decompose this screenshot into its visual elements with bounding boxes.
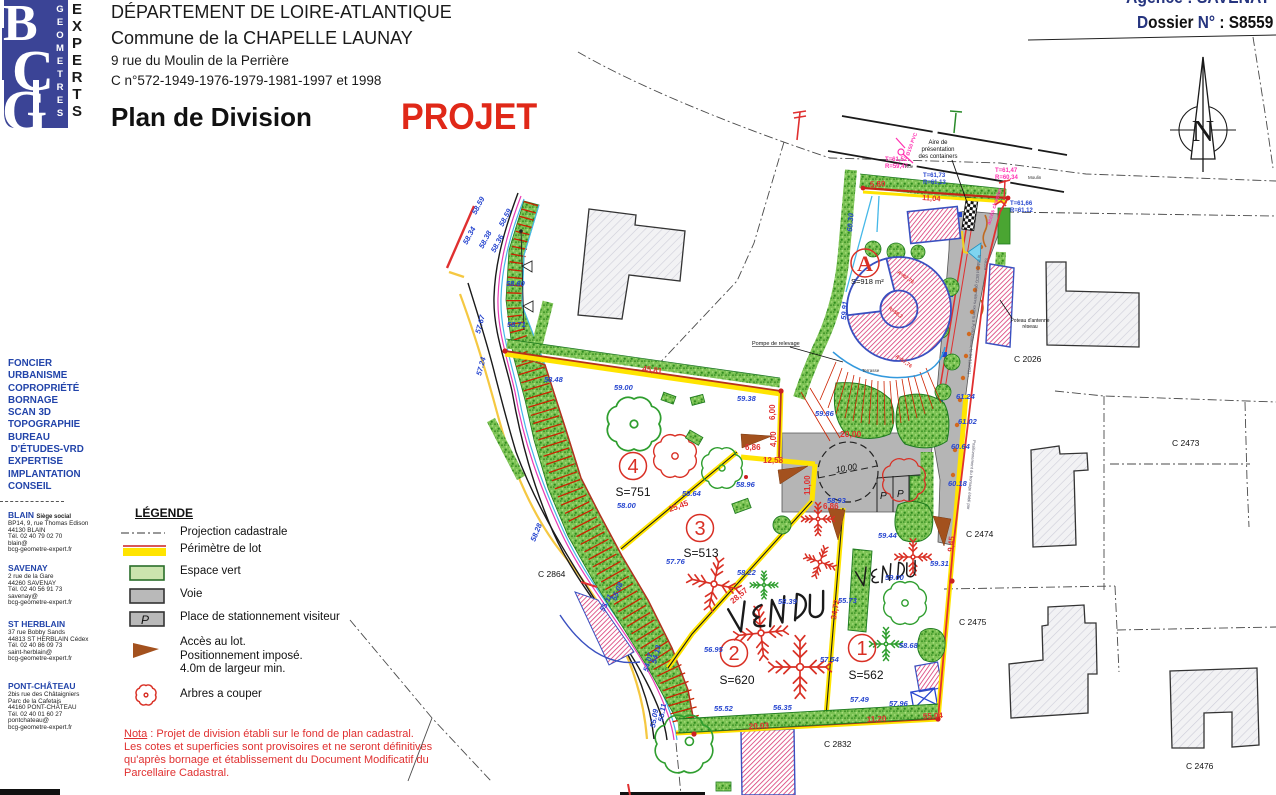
svg-text:58.39: 58.39 [778, 597, 798, 606]
svg-text:1: 1 [856, 638, 867, 660]
svg-text:56.35: 56.35 [773, 703, 793, 712]
svg-text:34,72: 34,72 [829, 599, 841, 621]
svg-text:Terrasse: Terrasse [862, 368, 880, 373]
svg-text:58.48: 58.48 [544, 375, 564, 384]
svg-text:R=61,13: R=61,13 [923, 180, 947, 186]
svg-text:6,86: 6,86 [823, 502, 839, 511]
svg-text:57.67: 57.67 [473, 313, 487, 334]
svg-text:57.54: 57.54 [820, 655, 840, 664]
svg-text:59.00: 59.00 [885, 573, 905, 582]
svg-text:11,04: 11,04 [922, 193, 942, 203]
svg-text:25,45: 25,45 [668, 498, 690, 513]
svg-text:55.73: 55.73 [838, 596, 858, 605]
svg-text:59.31: 59.31 [930, 559, 949, 568]
svg-text:2: 2 [728, 643, 739, 665]
svg-text:4,00: 4,00 [769, 431, 778, 447]
svg-text:C 2026: C 2026 [1014, 354, 1042, 364]
svg-text:Ø150 PVC: Ø150 PVC [905, 132, 919, 157]
svg-text:58.59: 58.59 [470, 194, 487, 216]
svg-text:S=513: S=513 [683, 546, 718, 560]
svg-text:Aire de: Aire de [928, 140, 948, 146]
svg-text:4: 4 [627, 456, 638, 478]
svg-text:58.60: 58.60 [506, 279, 526, 288]
svg-text:58.64: 58.64 [682, 489, 702, 498]
svg-text:20,00: 20,00 [840, 429, 862, 439]
svg-text:S=918 m²: S=918 m² [851, 277, 884, 286]
svg-text:C 2474: C 2474 [966, 529, 994, 539]
svg-text:11,00: 11,00 [803, 475, 812, 495]
svg-text:Pompe de relevage: Pompe de relevage [752, 341, 800, 347]
svg-text:Moulin: Moulin [1028, 175, 1042, 180]
svg-text:réseau: réseau [1022, 324, 1038, 330]
svg-text:61.24: 61.24 [956, 392, 976, 401]
svg-text:57.96: 57.96 [889, 699, 909, 708]
svg-text:58.22: 58.22 [737, 568, 757, 577]
svg-text:57.49: 57.49 [850, 695, 870, 704]
svg-text:N: N [1192, 113, 1214, 148]
svg-text:60.30: 60.30 [845, 212, 856, 232]
svg-text:A: A [857, 251, 873, 276]
svg-text:R=60,34: R=60,34 [995, 175, 1019, 181]
svg-text:S=562: S=562 [848, 668, 883, 682]
svg-text:C 2864: C 2864 [538, 569, 566, 579]
svg-text:60.64: 60.64 [951, 442, 971, 451]
svg-text:58.71: 58.71 [507, 320, 526, 329]
svg-text:61.02: 61.02 [958, 417, 978, 426]
svg-text:58.00: 58.00 [617, 501, 637, 510]
svg-text:C 2473: C 2473 [1172, 438, 1200, 448]
svg-text:S=751: S=751 [615, 485, 650, 499]
svg-text:9,45: 9,45 [946, 535, 956, 552]
svg-text:P: P [141, 613, 149, 627]
svg-text:3: 3 [694, 518, 705, 540]
svg-text:T=61,66: T=61,66 [1010, 201, 1033, 207]
svg-text:55,04: 55,04 [923, 711, 944, 721]
svg-text:59.44: 59.44 [878, 531, 898, 540]
svg-text:R=61,12: R=61,12 [1010, 208, 1034, 214]
svg-text:6,86: 6,86 [745, 443, 761, 452]
svg-text:5,80: 5,80 [870, 179, 887, 189]
svg-text:56.95: 56.95 [704, 645, 724, 654]
svg-text:55.52: 55.52 [714, 704, 734, 713]
svg-text:6,00: 6,00 [768, 404, 777, 420]
svg-text:59.00: 59.00 [614, 383, 634, 392]
svg-text:59.91: 59.91 [839, 301, 850, 320]
svg-text:C 2832: C 2832 [824, 739, 852, 749]
svg-text:12,58: 12,58 [763, 456, 784, 465]
svg-text:59.86: 59.86 [815, 409, 835, 418]
svg-text:présentation: présentation [921, 147, 954, 153]
svg-text:60.18: 60.18 [948, 479, 968, 488]
svg-text:55.11: 55.11 [656, 703, 668, 723]
svg-text:11,20: 11,20 [867, 714, 888, 724]
svg-text:58.68: 58.68 [899, 641, 919, 650]
svg-text:des containers: des containers [918, 154, 957, 160]
svg-text:T=61,47: T=61,47 [995, 168, 1018, 174]
svg-text:20,03: 20,03 [749, 721, 770, 731]
svg-text:T=61,73: T=61,73 [923, 173, 946, 179]
svg-text:C 2476: C 2476 [1186, 761, 1214, 771]
svg-text:C 2475: C 2475 [959, 617, 987, 627]
svg-text:P: P [897, 489, 904, 500]
svg-text:57.76: 57.76 [666, 557, 686, 566]
svg-text:S=620: S=620 [719, 673, 754, 687]
svg-text:T=61,52: T=61,52 [885, 157, 908, 163]
svg-text:Rue: Rue [905, 164, 914, 169]
svg-text:59.38: 59.38 [737, 394, 757, 403]
svg-text:58.96: 58.96 [736, 480, 756, 489]
